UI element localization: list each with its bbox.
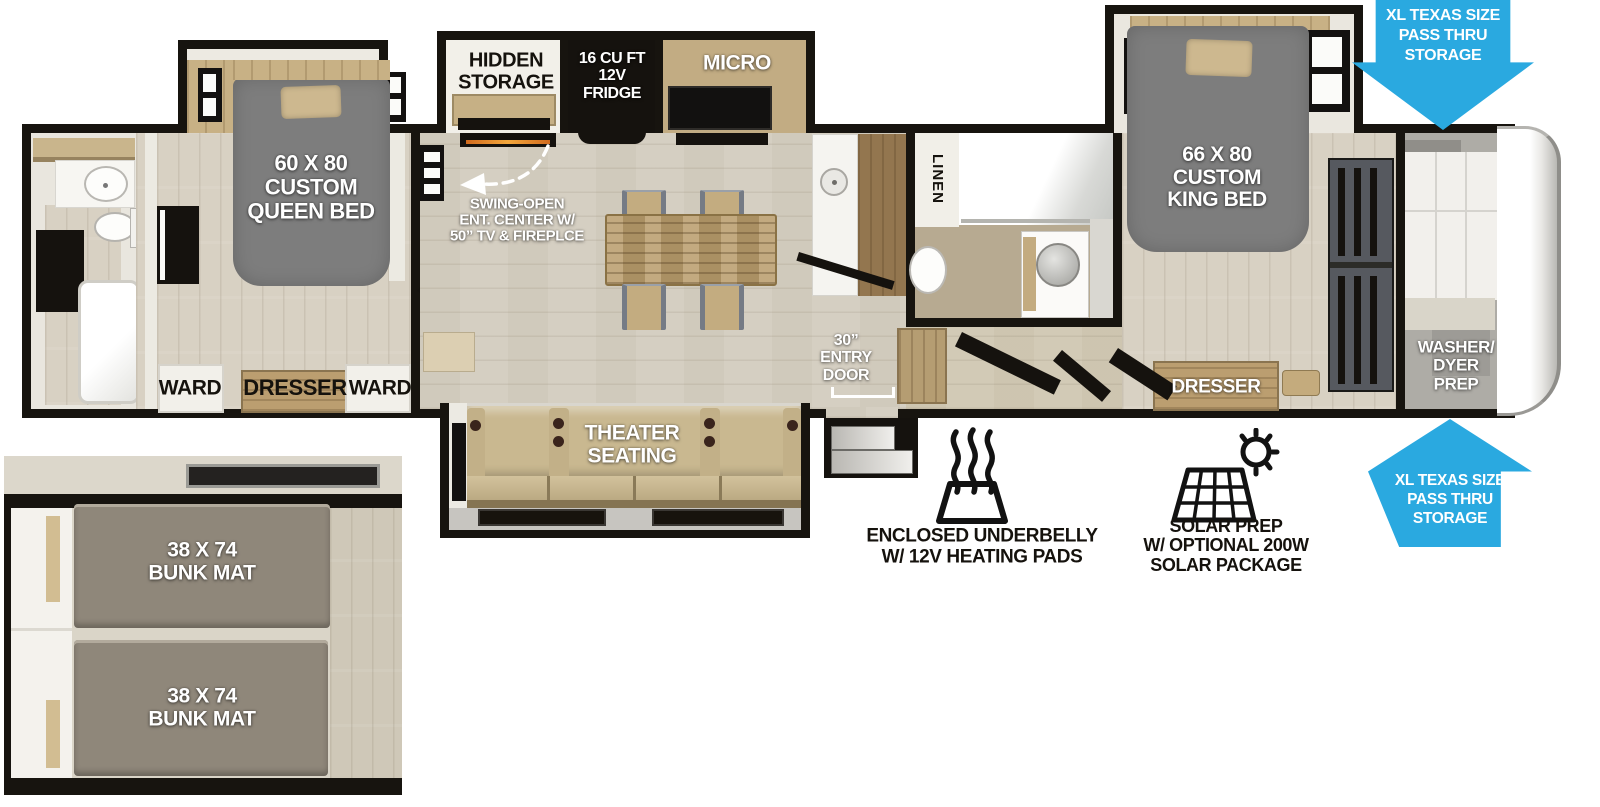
cooktop-icon — [668, 86, 772, 130]
slide-divider — [655, 40, 663, 133]
heating-pads-icon — [918, 426, 1026, 528]
faucet-icon — [103, 183, 108, 188]
bunk-mat-top-label: 38 X 74 BUNK MAT — [148, 539, 255, 584]
floor-mat — [478, 509, 606, 526]
king-pillow — [1185, 39, 1252, 77]
cupholder-icon — [553, 418, 564, 429]
entry-door-label: 30” ENTRY DOOR — [820, 332, 872, 384]
queen-bed-label: 60 X 80 CUSTOM QUEEN BED — [247, 151, 374, 222]
corner-cabinet — [423, 332, 475, 372]
cupholder-icon — [704, 436, 715, 447]
king-bed-label: 66 X 80 CUSTOM KING BED — [1167, 144, 1266, 212]
entry-door-bracket — [831, 387, 895, 398]
shower-icon — [78, 280, 140, 404]
hall-bottom-wall — [906, 409, 1122, 418]
kitchen-faucet-icon — [832, 180, 837, 185]
pass-thru-label-bottom: XL TEXAS SIZE PASS THRU STORAGE — [1368, 471, 1532, 528]
queen-pillow — [280, 85, 341, 119]
toilet-icon — [909, 246, 947, 294]
bath-cabinet — [33, 138, 135, 162]
ent-center-note: SWING-OPEN ENT. CENTER W/ 50” TV & FIREP… — [450, 197, 584, 246]
tv-screen-edge — [160, 210, 165, 280]
step-tread — [831, 426, 895, 450]
window-icon — [420, 145, 444, 201]
bench-stool — [1282, 370, 1320, 396]
vessel-sink-icon — [1036, 243, 1080, 287]
bunk-bottom-wall — [4, 778, 402, 795]
vanity-tan-strip — [1023, 237, 1036, 311]
window-icon — [198, 68, 222, 122]
cooktop-front — [676, 133, 768, 145]
rear-mid-slab — [1405, 298, 1495, 330]
queen-dresser-label: DRESSER — [243, 376, 347, 400]
rv-floorplan: 60 X 80 CUSTOM QUEEN BED WARD DRESSER WA… — [0, 0, 1600, 807]
pass-thru-label-top: XL TEXAS SIZE PASS THRU STORAGE — [1352, 6, 1534, 66]
pass-thru-arrow-up-icon: XL TEXAS SIZE PASS THRU STORAGE — [1368, 419, 1532, 547]
window-icon — [1304, 30, 1350, 112]
dining-table — [605, 214, 777, 286]
wardrobe-right-label: WARD — [349, 378, 412, 401]
shower — [959, 133, 1113, 225]
bunk-mat-bottom-label: 38 X 74 BUNK MAT — [148, 685, 255, 730]
dining-chair — [622, 284, 666, 330]
shower-glass-line — [961, 219, 1111, 223]
bunk-cabinets — [10, 508, 72, 782]
fridge-label: 16 CU FT 12V FRIDGE — [579, 50, 645, 102]
cupholder-icon — [787, 420, 798, 431]
entry-door-gap — [826, 407, 898, 418]
underbelly-label: ENCLOSED UNDERBELLY W/ 12V HEATING PADS — [866, 526, 1097, 567]
step-tread — [831, 450, 913, 474]
dining-chair — [700, 284, 744, 330]
bunk-window-icon — [186, 464, 380, 488]
slide-divider — [560, 40, 568, 133]
cupholder-icon — [704, 418, 715, 429]
linen-label: LINEN — [929, 154, 945, 204]
swing-open-arrow-icon — [452, 138, 556, 204]
cupholder-icon — [553, 436, 564, 447]
pass-thru-arrow-down-icon: XL TEXAS SIZE PASS THRU STORAGE — [1352, 0, 1534, 130]
bunk-floor-strip — [330, 508, 402, 782]
fridge-door — [578, 122, 646, 144]
floor-mat — [652, 509, 784, 526]
washer-dryer-label: WASHER/ DYER PREP — [1418, 338, 1495, 393]
solar-label: SOLAR PREP W/ OPTIONAL 200W SOLAR PACKAG… — [1143, 517, 1308, 575]
solar-panel-icon — [1166, 428, 1282, 528]
rear-cabinets — [1405, 152, 1500, 300]
cupholder-icon — [470, 420, 481, 431]
bath-wall-panel — [1090, 219, 1113, 318]
hidden-storage-label: HIDDEN STORAGE — [458, 50, 554, 93]
king-dresser-label: DRESSER — [1171, 378, 1260, 399]
bunk-left-wall — [4, 494, 11, 795]
seat-front-shadow — [467, 500, 801, 508]
queen-wall-left — [145, 133, 157, 409]
queen-wall-right — [389, 133, 405, 281]
wardrobe-left-label: WARD — [159, 378, 222, 401]
bunk-room-inset: 38 X 74 BUNK MAT 38 X 74 BUNK MAT — [4, 456, 406, 804]
micro-label: MICRO — [703, 53, 771, 76]
window-icon — [452, 423, 466, 501]
queen-bed-head — [233, 60, 390, 80]
hall-wardrobe — [897, 328, 947, 404]
hidden-storage-hearth — [458, 118, 550, 130]
bath-black-cabinet — [36, 230, 84, 312]
theater-label: THEATER SEATING — [585, 422, 680, 467]
closet-slats — [1328, 158, 1394, 392]
front-cap — [1497, 126, 1561, 416]
